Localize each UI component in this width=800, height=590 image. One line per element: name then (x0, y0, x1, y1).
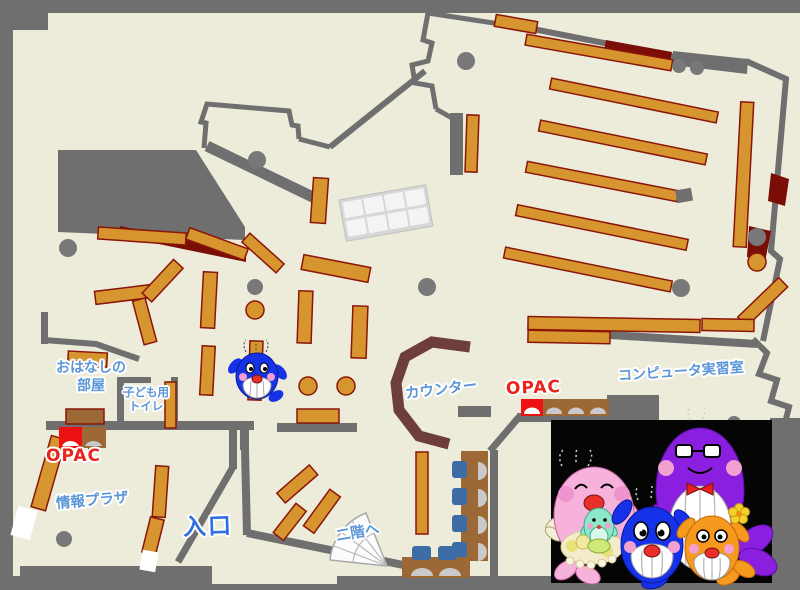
opac-station-left (59, 409, 106, 448)
label-opac-left: OPAC (46, 446, 101, 467)
pillar (672, 59, 686, 73)
chair (452, 488, 467, 505)
pillar (457, 52, 475, 70)
pillar (690, 61, 704, 75)
round-table (246, 301, 264, 319)
bookshelf (310, 178, 328, 224)
round-table (748, 253, 766, 271)
pillar (748, 228, 766, 246)
bookshelf (702, 319, 754, 332)
pillar (672, 279, 690, 297)
bookshelf (200, 346, 216, 396)
label-opac-right: OPAC (506, 377, 562, 400)
door-gap (139, 550, 158, 572)
pillar (248, 151, 266, 169)
pillar (56, 531, 72, 547)
label-storytelling-line1: おはなしの (50, 360, 132, 378)
entrance-opening (212, 563, 337, 584)
bookshelf (416, 452, 428, 534)
chair (412, 546, 431, 560)
chair (452, 461, 467, 478)
label-kids-toilet-line2: トイレ (114, 399, 178, 413)
bookshelf (528, 330, 610, 343)
label-kids-toilet-line1: 子ども用 (114, 385, 178, 399)
label-kids-toilet: 子ども用 トイレ (114, 385, 178, 414)
opac-station-right (521, 399, 609, 416)
round-table (299, 377, 317, 395)
pillar (418, 278, 436, 296)
bookshelf (201, 272, 218, 329)
round-table (337, 377, 355, 395)
chair (438, 546, 457, 560)
shelf-end-wall (675, 188, 693, 204)
bookshelf (152, 466, 169, 518)
whale-family-photo (543, 408, 781, 590)
bookshelf (465, 115, 479, 172)
library-floor-map: おはなしの 部屋 子ども用 トイレ OPAC OPAC 情報プラザ 入口 二階へ… (0, 0, 800, 590)
bookshelf (297, 409, 339, 423)
bookshelf (351, 306, 368, 358)
chair (452, 515, 467, 532)
pillar (247, 279, 263, 295)
bookshelf (297, 291, 313, 343)
pillar (59, 239, 77, 257)
shelf (66, 409, 104, 424)
label-entrance: 入口 (183, 512, 234, 542)
